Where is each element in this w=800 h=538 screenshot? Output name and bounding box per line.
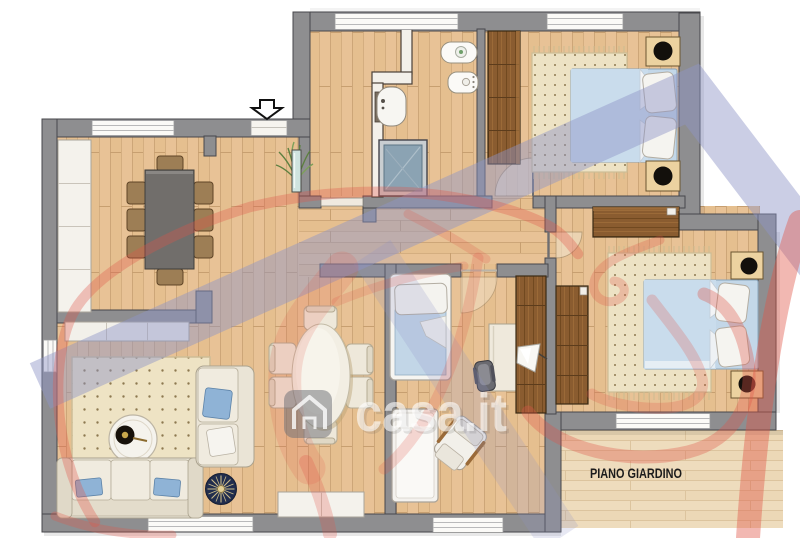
svg-text:casa.it: casa.it	[355, 383, 507, 443]
svg-text:PIANO GIARDINO: PIANO GIARDINO	[590, 466, 682, 481]
